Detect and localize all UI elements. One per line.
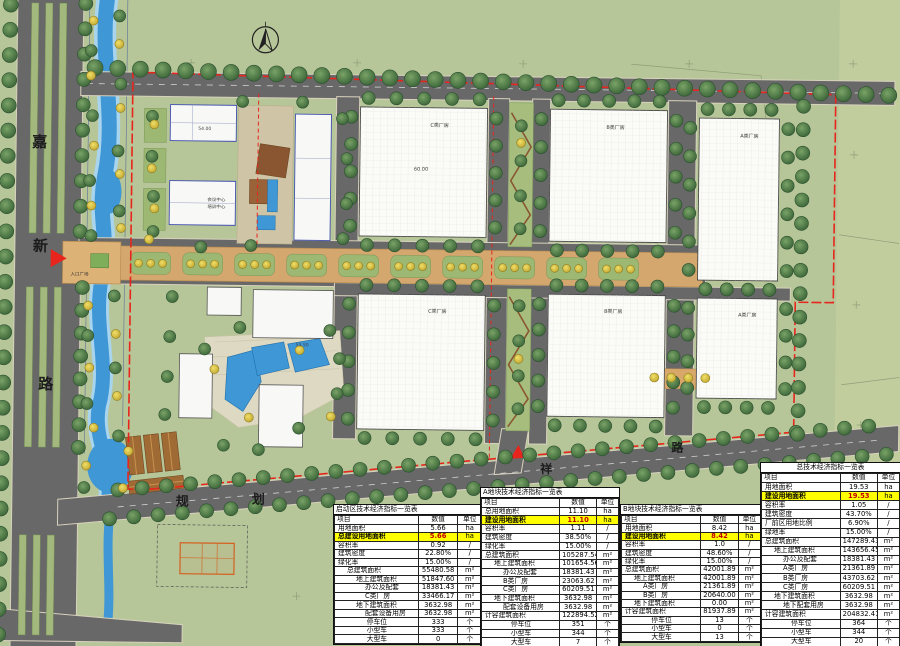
road-name-label: 规: [176, 495, 189, 510]
table-cell: m²: [458, 592, 482, 601]
column-header: 项目: [335, 516, 419, 525]
table-cell: 20640.00: [701, 591, 739, 599]
table-total-indicators: 总技术经济指标一览表项目数值单位用地面积19.53ha建设用地面积19.53ha…: [760, 462, 900, 646]
table-cell: 147289.43: [840, 537, 877, 546]
plaza-green-square: [91, 254, 109, 268]
table-cell: 18381.43: [560, 568, 597, 577]
table-cell: ha: [738, 532, 760, 540]
table-row: 容积率1.0/: [622, 541, 761, 549]
table-cell: 81937.89: [701, 608, 739, 616]
table-row: 地下建筑面积3632.98m²: [335, 601, 482, 610]
table-row: 建设用地面积11.10ha: [482, 516, 619, 525]
table-cell: 小型车: [622, 625, 701, 633]
dormitory-cluster: [123, 431, 184, 494]
table-row: 地上建筑面积42001.89m²: [622, 574, 761, 582]
building-label: B类厂房: [606, 124, 625, 131]
table-cell: 容积率: [762, 501, 841, 510]
table-cell: 0: [701, 625, 739, 633]
table-cell: m²: [458, 567, 482, 576]
column-header: 单位: [458, 516, 482, 525]
table-cell: 351: [560, 620, 597, 629]
table-row: 建筑密度22.80%/: [335, 550, 482, 559]
table-cell: 停车位: [762, 619, 841, 628]
table-row: 总建设用地面积5.66ha: [335, 533, 482, 542]
table-row: 用地面积19.53ha: [762, 483, 900, 492]
table-cell: m²: [597, 551, 619, 560]
table-cell: /: [877, 519, 899, 528]
building-label: C类厂房: [430, 122, 449, 129]
table-cell: m²: [738, 583, 760, 591]
table-cell: m²: [597, 603, 619, 612]
table-cell: 143656.45: [840, 546, 877, 555]
table-cell: A类厂房: [622, 583, 701, 591]
table-cell: 23063.62: [560, 577, 597, 586]
table-cell: m²: [877, 574, 899, 583]
table-cell: m²: [738, 574, 760, 582]
table-cell: 个: [458, 635, 482, 644]
table-cell: 绿化率: [482, 542, 560, 551]
table-cell: 容积率: [482, 525, 560, 534]
table-cell: 建筑密度: [335, 550, 419, 559]
road-name-label: 祥: [540, 461, 552, 476]
table-row: 小型车333个: [335, 626, 482, 635]
table-header-row: 项目数值单位: [335, 516, 482, 525]
table-cell: 建筑密度: [622, 549, 701, 557]
courtyard-pool: [267, 180, 277, 212]
table-row: 建设用地面积19.53ha: [762, 492, 900, 501]
table-cell: 21361.89: [701, 583, 739, 591]
dimension-label: 53.50: [296, 342, 309, 348]
column-header: 项目: [482, 499, 560, 508]
table-cell: 建设用地面积: [762, 492, 841, 501]
table-cell: 33466.17: [418, 592, 458, 601]
table-cell: 个: [597, 620, 619, 629]
table-cell: 小型车: [335, 626, 419, 635]
table-cell: 5.66: [418, 533, 458, 542]
table-row: 停车位13个: [622, 616, 761, 624]
table-cell: 15.00%: [701, 557, 739, 565]
table-cell: m²: [458, 575, 482, 584]
table-cell: 建设用地面积: [482, 516, 560, 525]
table-cell: 办公及配套: [762, 555, 841, 564]
table-cell: 停车位: [335, 618, 419, 627]
table-cell: 地上建筑面积: [622, 574, 701, 582]
table-cell: m²: [458, 584, 482, 593]
road-name-label: 嘉: [31, 133, 47, 151]
table-cell: m²: [597, 577, 619, 586]
table-row: 绿化率15.00%/: [622, 557, 761, 565]
table-row: 容积率1.05/: [762, 501, 900, 510]
table-cell: 绿化率: [335, 558, 419, 567]
table-cell: 344: [840, 628, 877, 637]
table-row: 停车位364个: [762, 619, 900, 628]
building-label: C类厂房: [428, 308, 447, 315]
table-cell: 小型车: [482, 629, 560, 638]
table-cell: /: [738, 541, 760, 549]
building-label: B类厂房: [604, 308, 623, 315]
table-cell: 60209.51: [560, 586, 597, 595]
table-cell: 1.11: [560, 525, 597, 534]
table-row: 建筑密度38.50%/: [482, 533, 619, 542]
table-row: 建设用地面积8.42ha: [622, 532, 761, 540]
table-cell: 5.66: [418, 524, 458, 533]
table-row: 地下建筑面积3632.98m²: [762, 592, 900, 601]
table-row: 大型车13个: [622, 633, 761, 642]
table-cell: m²: [877, 610, 899, 619]
column-header: 数值: [840, 474, 877, 483]
table-title: A地块技术经济指标一览表: [481, 488, 619, 498]
table-cell: 105287.54: [560, 551, 597, 560]
column-header: 项目: [762, 474, 841, 483]
table-row: 大型车20个: [762, 637, 900, 646]
table-cell: C类厂房: [482, 586, 560, 595]
table-cell: 地上建筑面积: [335, 575, 419, 584]
table-cell: 8.42: [701, 524, 739, 532]
table-cell: 1.05: [840, 501, 877, 510]
table-cell: 用地面积: [335, 524, 419, 533]
table-cell: 18381.43: [418, 584, 458, 593]
table-row: 办公及配套18381.43m²: [335, 584, 482, 593]
table-cell: /: [458, 541, 482, 550]
table-row: 配套设备用房3632.98m²: [482, 603, 619, 612]
table-cell: m²: [877, 537, 899, 546]
table-cell: 60209.51: [840, 583, 877, 592]
table-cell: 个: [597, 629, 619, 638]
table-cell: 55480.58: [418, 567, 458, 576]
table-cell: 建设用地面积: [622, 532, 701, 540]
table-cell: m²: [877, 564, 899, 573]
table-cell: 1.0: [701, 541, 739, 549]
table-cell: 建筑密度: [762, 510, 841, 519]
table-row: C类厂房60209.51m²: [482, 586, 619, 595]
table-row: 地下建筑面积3632.98m²: [482, 594, 619, 603]
table-cell: 办公及配套: [335, 584, 419, 593]
office-building: [258, 385, 303, 448]
table-row: 绿地率15.00%/: [762, 528, 900, 537]
office-building: [179, 354, 213, 418]
table-row: 建筑密度43.70%/: [762, 510, 900, 519]
table-row: 办公及配套18381.43m²: [482, 568, 619, 577]
table-cell: /: [597, 525, 619, 534]
factory-building: [698, 118, 780, 281]
table-cell: m²: [458, 609, 482, 618]
dimension-label: 54.00: [198, 126, 211, 132]
table-cell: 停车位: [482, 620, 560, 629]
table-row: 计容建筑面积122894.52m²: [482, 612, 619, 621]
table-row: 地上建筑面积51847.60m²: [335, 575, 482, 584]
table-title: 启动区技术经济指标一览表: [334, 505, 482, 515]
table-cell: 15.00%: [840, 528, 877, 537]
table-cell: 0: [418, 635, 458, 644]
table-startup-zone-indicators: 启动区技术经济指标一览表项目数值单位用地面积5.66ha总建设用地面积5.66h…: [333, 504, 483, 645]
table-cell: 19.53: [840, 483, 877, 492]
table-cell: 个: [458, 618, 482, 627]
table-cell: 个: [877, 628, 899, 637]
table-cell: 0.92: [418, 541, 458, 550]
table-row: 停车位351个: [482, 620, 619, 629]
table-row: 总建筑面积147289.43m²: [762, 537, 900, 546]
table-cell: 用地面积: [622, 524, 701, 532]
table-cell: 101654.56: [560, 559, 597, 568]
table-row: 地下配套用房3632.98m²: [762, 601, 900, 610]
table-cell: 计容建筑面积: [762, 610, 841, 619]
ground-east: [834, 0, 900, 466]
column-header: 单位: [738, 516, 760, 524]
table-row: 建筑密度48.60%/: [622, 549, 761, 557]
table-cell: 3632.98: [840, 592, 877, 601]
table-cell: /: [877, 528, 899, 537]
table-row: 总建筑面积55480.58m²: [335, 567, 482, 576]
wood-deck: [256, 144, 290, 178]
table-cell: 地下建筑面积: [335, 601, 419, 610]
table-cell: m²: [597, 559, 619, 568]
table-cell: 43703.62: [840, 574, 877, 583]
table-cell: B类厂房: [622, 591, 701, 599]
column-header: 单位: [877, 474, 899, 483]
table-cell: 绿化率: [622, 557, 701, 565]
table-cell: 333: [418, 626, 458, 635]
office-building: [253, 290, 334, 339]
table-cell: 容积率: [622, 541, 701, 549]
table-cell: ha: [458, 533, 482, 542]
table-cell: 344: [560, 629, 597, 638]
table-cell: 204832.41: [840, 610, 877, 619]
table-cell: m²: [458, 601, 482, 610]
table-row: 总用地面积11.10ha: [482, 507, 619, 516]
table-title: B地块技术经济指标一览表: [621, 505, 761, 515]
table-cell: 配套设备用房: [335, 609, 419, 618]
table-cell: 总建筑面积: [622, 566, 701, 574]
table-row: 大型车0个: [335, 635, 482, 644]
table-cell: /: [877, 501, 899, 510]
table-cell: B类厂房: [762, 574, 841, 583]
table-cell: m²: [738, 599, 760, 607]
table-cell: 总用地面积: [482, 507, 560, 516]
table-cell: 总建筑面积: [335, 567, 419, 576]
table-header-row: 项目数值单位: [482, 499, 619, 508]
building-label: A类厂房: [738, 312, 757, 319]
table-cell: 15.00%: [418, 558, 458, 567]
table-cell: 11.10: [560, 507, 597, 516]
table-cell: 个: [738, 616, 760, 624]
table-row: A类厂房21361.89m²: [622, 583, 761, 591]
table-cell: 18381.43: [840, 555, 877, 564]
table-cell: 21361.89: [840, 564, 877, 573]
table-cell: 个: [738, 625, 760, 633]
table-cell: 地上建筑面积: [762, 546, 841, 555]
table-cell: 个: [877, 637, 899, 646]
road-name-label: 路: [38, 375, 54, 393]
table-cell: 3632.98: [560, 603, 597, 612]
table-cell: 个: [877, 619, 899, 628]
road-name-label: 划: [252, 492, 265, 508]
table-cell: m²: [597, 594, 619, 603]
table-cell: A类厂房: [762, 564, 841, 573]
factory-building: [357, 294, 486, 431]
table-cell: 计容建筑面积: [622, 608, 701, 616]
table-cell: 计容建筑面积: [482, 612, 560, 621]
table-row: 绿化率15.00%/: [482, 542, 619, 551]
table-row: 小型车344个: [762, 628, 900, 637]
table-header-row: 项目数值单位: [762, 474, 900, 483]
table-cell: /: [738, 557, 760, 565]
table-cell: m²: [877, 546, 899, 555]
table-cell: ha: [458, 524, 482, 533]
table-cell: 0.00: [701, 599, 739, 607]
column-header: 单位: [597, 499, 619, 508]
table-cell: 大型车: [762, 637, 841, 646]
table-cell: m²: [877, 601, 899, 610]
table-cell: 43.70%: [840, 510, 877, 519]
table-cell: ha: [597, 507, 619, 516]
office-building: [294, 114, 332, 240]
table-cell: 38.50%: [560, 533, 597, 542]
table-row: 绿化率15.00%/: [335, 558, 482, 567]
table-cell: B类厂房: [482, 577, 560, 586]
table-cell: 3632.98: [418, 609, 458, 618]
table-header-row: 项目数值单位: [622, 516, 761, 524]
courtyard-pool: [257, 216, 275, 230]
table-cell: 总建设用地面积: [335, 533, 419, 542]
table-cell: 地下配套用房: [762, 601, 841, 610]
table-row: 小型车344个: [482, 629, 619, 638]
table-row: 计容建筑面积204832.41m²: [762, 610, 900, 619]
table-cell: 总建筑面积: [482, 551, 560, 560]
table-cell: 15.00%: [560, 542, 597, 551]
table-cell: 地下建筑面积: [762, 592, 841, 601]
office-building: [207, 287, 241, 315]
table-cell: 3632.98: [840, 601, 877, 610]
table-cell: 容积率: [335, 541, 419, 550]
table-cell: 13: [701, 633, 739, 642]
table-cell: m²: [738, 608, 760, 616]
table-cell: 6.90%: [840, 519, 877, 528]
table-row: A类厂房21361.89m²: [762, 564, 900, 573]
table-cell: 22.80%: [418, 550, 458, 559]
table-cell: /: [458, 558, 482, 567]
table-cell: 个: [458, 626, 482, 635]
road-name-label: 新: [33, 237, 48, 255]
table-cell: /: [458, 550, 482, 559]
table-cell: m²: [738, 566, 760, 574]
table-row: B类厂房23063.62m²: [482, 577, 619, 586]
table-cell: 7: [560, 638, 597, 646]
column-header: 数值: [560, 499, 597, 508]
table-cell: 3632.98: [418, 601, 458, 610]
column-header: 数值: [418, 516, 458, 525]
table-cell: /: [597, 542, 619, 551]
table-row: B类厂房43703.62m²: [762, 574, 900, 583]
table-cell: 3632.98: [560, 594, 597, 603]
table-cell: 小型车: [762, 628, 841, 637]
factory-building: [696, 298, 777, 399]
table-row: 容积率1.11/: [482, 525, 619, 534]
table-cell: 大型车: [622, 633, 701, 642]
table-cell: /: [597, 533, 619, 542]
table-cell: 122894.52: [560, 612, 597, 621]
table-cell: /: [877, 510, 899, 519]
table-row: B类厂房20640.00m²: [622, 591, 761, 599]
table-cell: m²: [597, 586, 619, 595]
table-cell: m²: [597, 568, 619, 577]
table-row: 地下建筑面积0.00m²: [622, 599, 761, 607]
table-cell: 大型车: [482, 638, 560, 646]
road-name-label: 路: [671, 440, 684, 455]
table-cell: 51847.60: [418, 575, 458, 584]
table-cell: 地下建筑面积: [482, 594, 560, 603]
table-cell: 19.53: [840, 492, 877, 501]
table-cell: 个: [597, 638, 619, 646]
table-row: 总建筑面积105287.54m²: [482, 551, 619, 560]
table-cell: 13: [701, 616, 739, 624]
table-cell: 地下建筑面积: [622, 599, 701, 607]
table-row: 小型车0个: [622, 625, 761, 633]
table-cell: 42001.89: [701, 574, 739, 582]
table-row: 总建筑面积42001.89m²: [622, 566, 761, 574]
table-row: 停车位333个: [335, 618, 482, 627]
table-cell: 8.42: [701, 532, 739, 540]
table-cell: m²: [877, 583, 899, 592]
table-row: 用地面积8.42ha: [622, 524, 761, 532]
table-cell: 绿地率: [762, 528, 841, 537]
table-cell: 大型车: [335, 635, 419, 644]
table-plot-b-indicators: B地块技术经济指标一览表项目数值单位用地面积8.42ha建设用地面积8.42ha…: [620, 504, 762, 643]
table-cell: m²: [597, 612, 619, 621]
table-cell: /: [738, 549, 760, 557]
table-row: 计容建筑面积81937.89m²: [622, 608, 761, 616]
table-cell: ha: [877, 483, 899, 492]
table-row: 办公及配套18381.43m²: [762, 555, 900, 564]
table-row: 容积率0.92/: [335, 541, 482, 550]
table-row: 厂前区用地比例6.90%/: [762, 519, 900, 528]
table-cell: C类厂房: [335, 592, 419, 601]
table-cell: 配套设备用房: [482, 603, 560, 612]
table-row: 用地面积5.66ha: [335, 524, 482, 533]
table-cell: ha: [877, 492, 899, 501]
table-row: C类厂房33466.17m²: [335, 592, 482, 601]
table-cell: 办公及配套: [482, 568, 560, 577]
table-row: 配套设备用房3632.98m²: [335, 609, 482, 618]
column-header: 项目: [622, 516, 701, 524]
wood-deck: [249, 180, 269, 204]
table-cell: 建筑密度: [482, 533, 560, 542]
table-cell: ha: [738, 524, 760, 532]
table-cell: 厂前区用地比例: [762, 519, 841, 528]
table-cell: 333: [418, 618, 458, 627]
table-cell: ha: [597, 516, 619, 525]
table-cell: m²: [877, 555, 899, 564]
table-cell: 用地面积: [762, 483, 841, 492]
table-cell: 停车位: [622, 616, 701, 624]
table-cell: 总建筑面积: [762, 537, 841, 546]
dimension-label: 60.00: [414, 167, 428, 173]
table-cell: C类厂房: [762, 583, 841, 592]
table-row: C类厂房60209.51m²: [762, 583, 900, 592]
table-cell: 48.60%: [701, 549, 739, 557]
table-title: 总技术经济指标一览表: [761, 463, 900, 473]
table-cell: 个: [738, 633, 760, 642]
column-header: 数值: [701, 516, 739, 524]
table-cell: 42001.89: [701, 566, 739, 574]
table-plot-a-indicators: A地块技术经济指标一览表项目数值单位总用地面积11.10ha建设用地面积11.1…: [480, 487, 620, 646]
table-cell: 11.10: [560, 516, 597, 525]
table-row: 地上建筑面积143656.45m²: [762, 546, 900, 555]
building-label: A类厂房: [740, 133, 759, 140]
table-cell: 地上建筑面积: [482, 559, 560, 568]
table-cell: 364: [840, 619, 877, 628]
table-cell: m²: [877, 592, 899, 601]
table-row: 大型车7个: [482, 638, 619, 646]
